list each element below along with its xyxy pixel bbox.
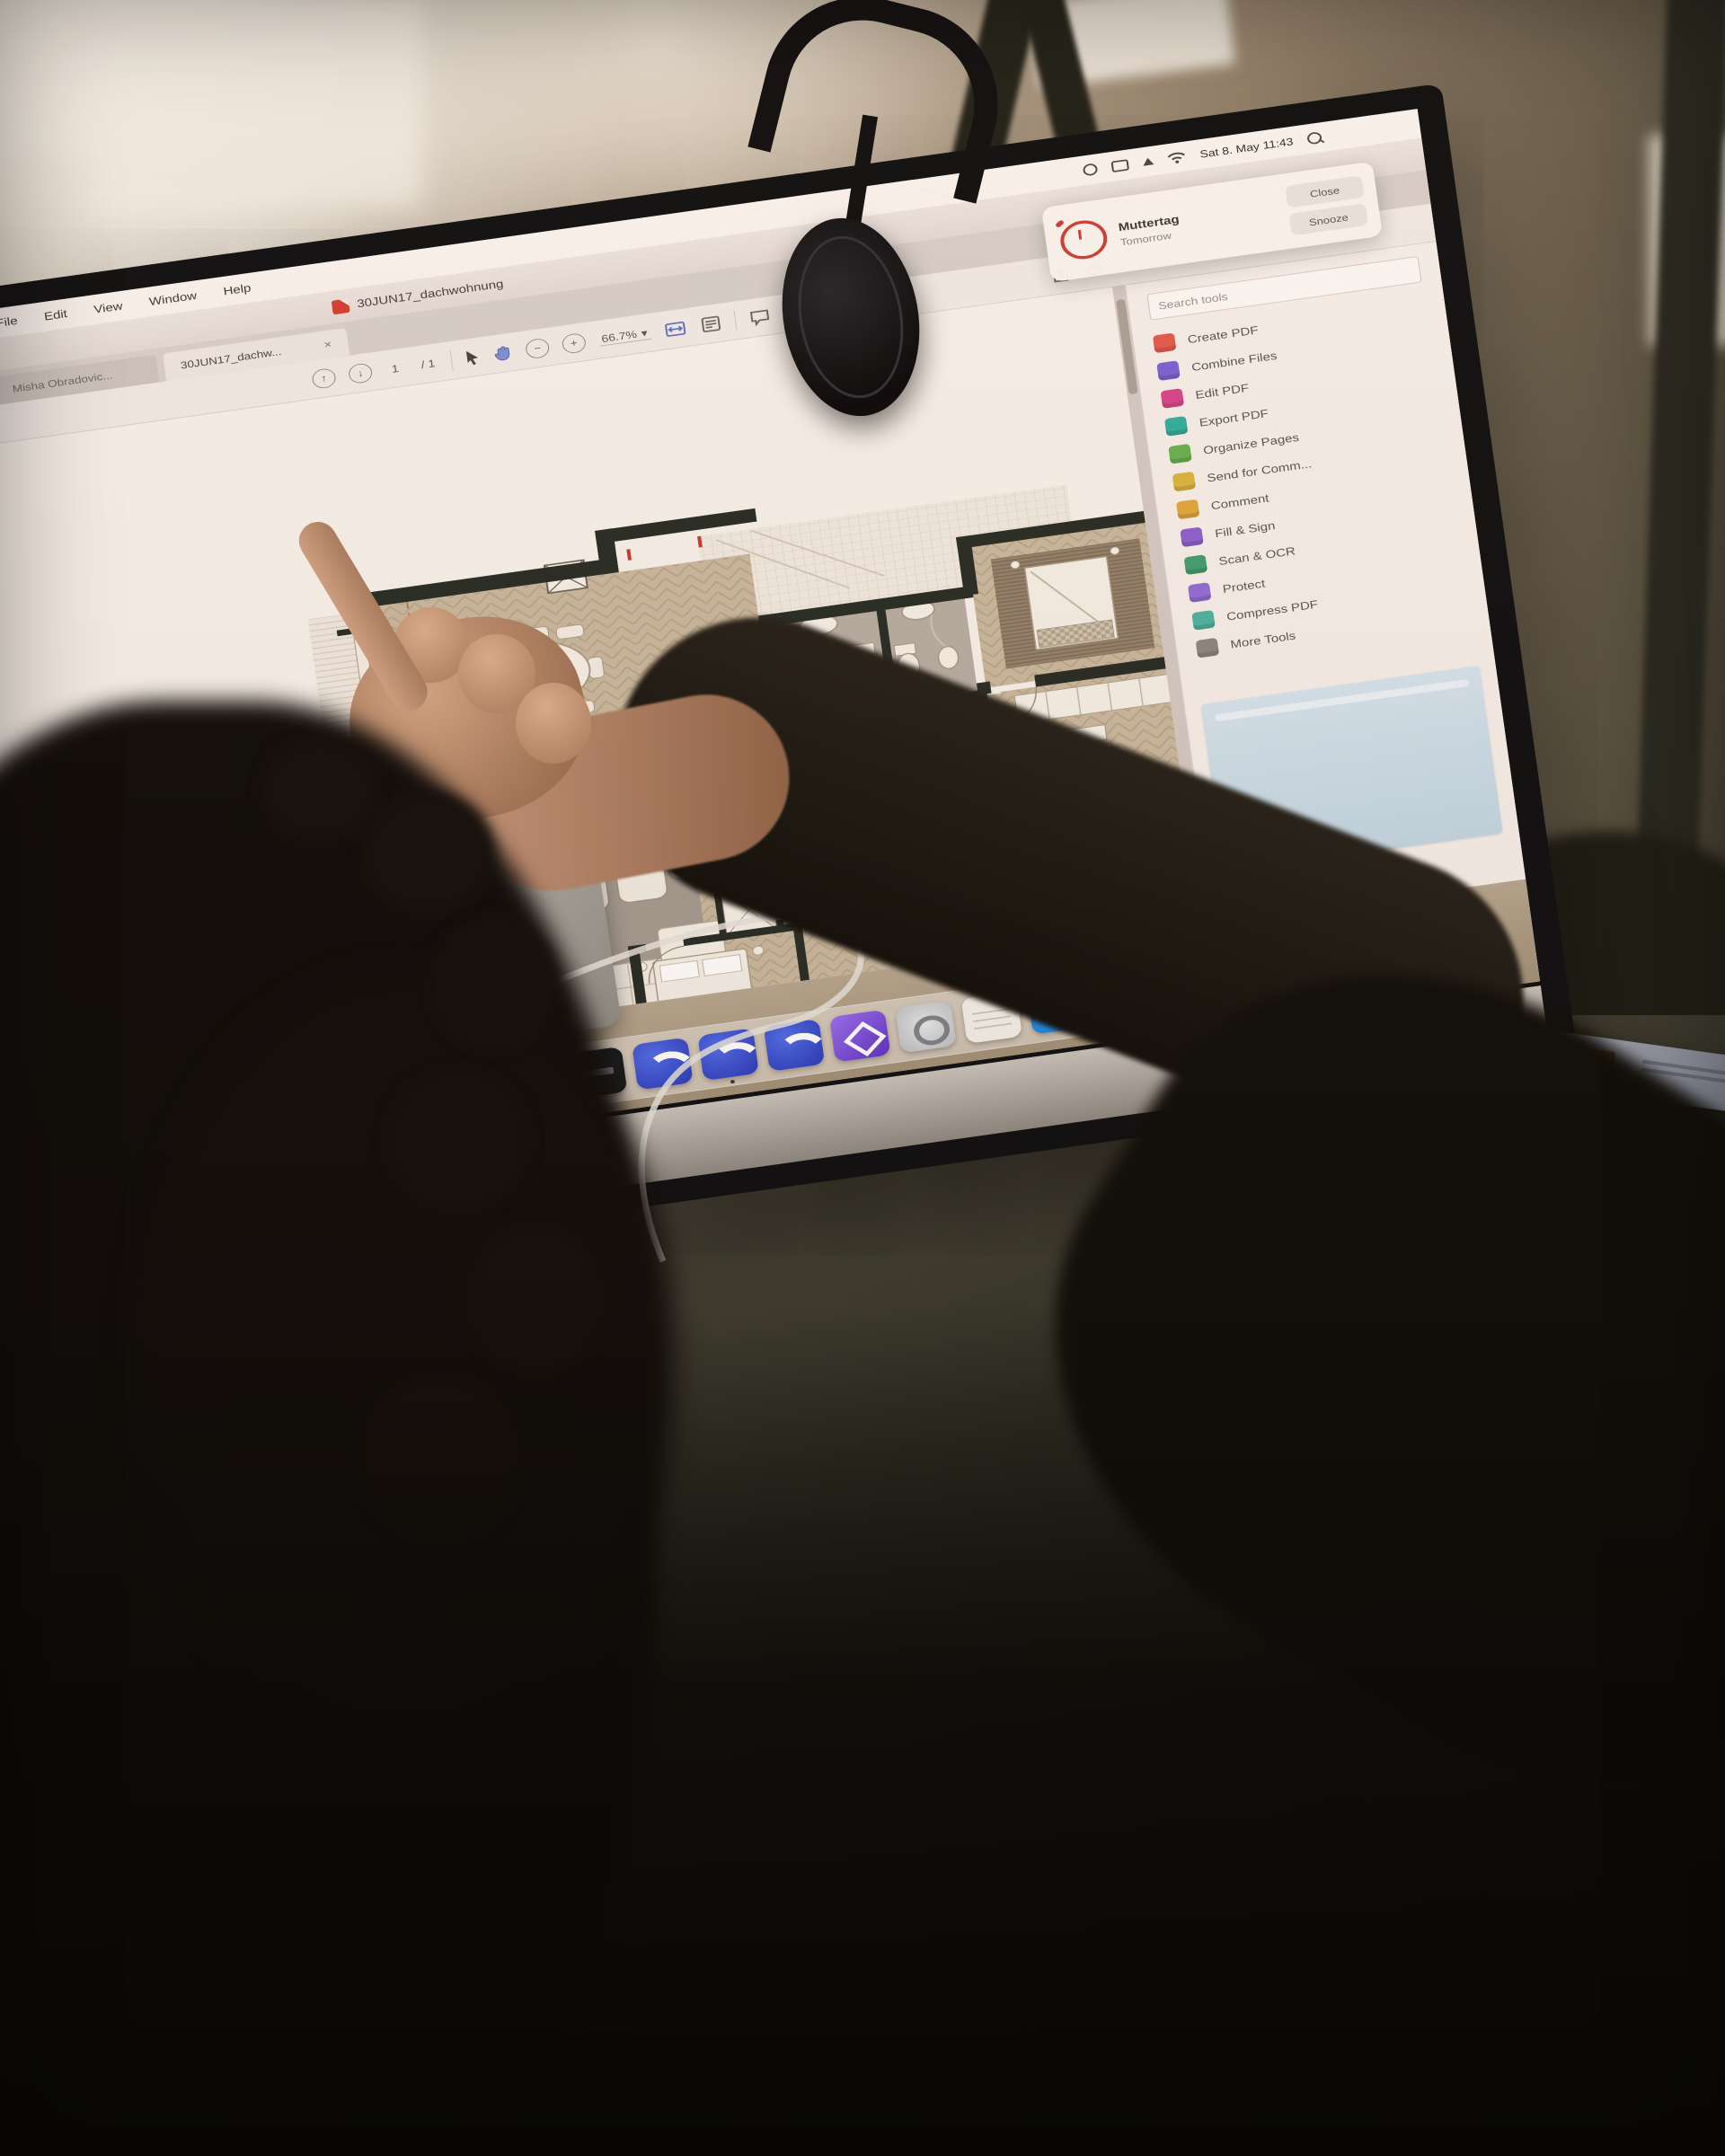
edit-pdf-icon	[1161, 388, 1185, 409]
tool-label: Scan & OCR	[1218, 544, 1296, 568]
menu-clock[interactable]: Sat 8. May 11:43	[1199, 136, 1295, 161]
menu-window[interactable]: Window	[148, 289, 198, 308]
upload-icon[interactable]	[1143, 157, 1154, 166]
tool-label: Edit PDF	[1195, 382, 1250, 402]
dock-icon-archicad[interactable]	[764, 1019, 825, 1072]
alarm-clock-icon	[1058, 217, 1110, 261]
protect-icon	[1188, 582, 1212, 603]
tool-label: Create PDF	[1187, 323, 1259, 346]
display-icon[interactable]	[1111, 159, 1130, 172]
tool-label: Fill & Sign	[1214, 519, 1276, 540]
dock-icon-bimx-purple[interactable]	[829, 1010, 890, 1063]
menu-view[interactable]: View	[93, 299, 123, 315]
page-down-button[interactable]: ↓	[348, 362, 374, 384]
combine-files-icon	[1156, 360, 1181, 381]
organize-pages-icon	[1168, 444, 1192, 464]
dock-icon-archicad[interactable]	[632, 1038, 693, 1091]
fill-sign-icon	[1180, 526, 1204, 547]
create-pdf-icon	[1153, 332, 1177, 353]
menu-help[interactable]: Help	[223, 281, 252, 297]
menu-file[interactable]: File	[0, 314, 18, 330]
hand-tool-icon[interactable]	[491, 344, 513, 363]
zoom-value: 66.7%	[601, 328, 638, 345]
bedroom-top-right	[991, 538, 1154, 668]
send-for-comments-icon	[1172, 472, 1197, 492]
comment-icon	[1176, 499, 1200, 520]
page-number-field[interactable]: 1	[384, 358, 406, 379]
spotlight-search-icon[interactable]	[1306, 131, 1322, 145]
notification-snooze-button[interactable]: Snooze	[1289, 203, 1369, 235]
toolbar-divider	[450, 350, 454, 371]
page-display-icon[interactable]	[699, 314, 722, 333]
compress-pdf-icon	[1191, 610, 1216, 631]
tool-label: More Tools	[1230, 630, 1296, 651]
tool-label: Combine Files	[1190, 349, 1278, 374]
dock-icon-system-preferences[interactable]	[895, 1000, 956, 1053]
zoom-in-button[interactable]: +	[561, 331, 587, 354]
zoom-out-button[interactable]: −	[525, 337, 551, 359]
tab-close-icon[interactable]: ×	[323, 338, 333, 351]
hair-curl	[261, 737, 377, 844]
dock-icon-archicad[interactable]	[697, 1028, 758, 1081]
hair-curl	[386, 1069, 530, 1213]
tool-label: Comment	[1210, 491, 1269, 512]
export-pdf-icon	[1164, 416, 1189, 437]
page-total-label: / 1	[417, 353, 439, 375]
notification-close-button[interactable]: Close	[1285, 175, 1365, 208]
tool-label: Export PDF	[1199, 407, 1269, 429]
select-tool-icon[interactable]	[464, 349, 481, 367]
status-icon[interactable]	[1083, 163, 1099, 176]
hair-curl	[359, 791, 494, 916]
photo-scene: File Edit View Window Help	[0, 0, 1725, 2156]
more-tools-icon	[1196, 638, 1220, 658]
menu-edit[interactable]: Edit	[43, 307, 68, 323]
knuckle	[516, 683, 591, 764]
page-up-button[interactable]: ↑	[311, 367, 337, 390]
wifi-icon[interactable]	[1167, 151, 1187, 164]
tool-label: Protect	[1222, 577, 1266, 595]
fit-width-icon[interactable]	[662, 319, 687, 338]
pdf-file-icon	[332, 298, 350, 314]
zoom-level-dropdown[interactable]: 66.7% ▾	[597, 326, 650, 347]
comment-bubble-icon[interactable]	[747, 307, 771, 326]
hair-curl	[431, 916, 557, 1051]
toolbar-divider	[733, 310, 737, 331]
desk-front-shadow	[0, 1303, 1725, 2156]
scan-ocr-icon	[1184, 554, 1208, 575]
chevron-down-icon: ▾	[641, 326, 649, 340]
